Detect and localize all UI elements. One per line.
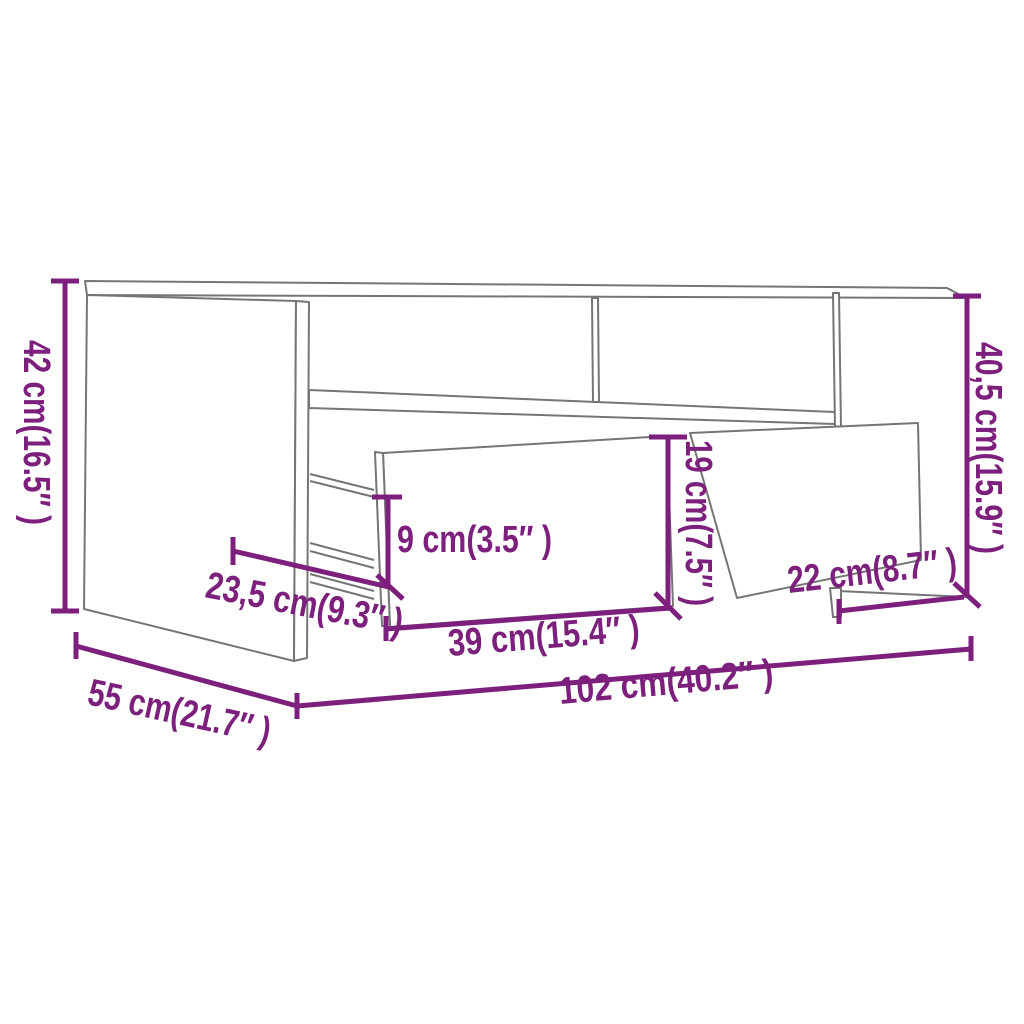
right-divider [833,293,841,428]
dim-drawer-front-height-label: 19 cm(7.5″ ) [677,440,719,606]
dim-height-left: 42 cm(16.5″ ) [15,281,79,611]
shelf-floor [309,390,835,424]
dim-width-label: 102 cm(40.2″ ) [557,652,775,713]
product-dimension-diagram: 42 cm(16.5″ ) 40,5 cm(15.9″ ) 19 cm(7.5″… [0,0,1024,1024]
dim-depth-label: 55 cm(21.7″ ) [84,672,275,753]
dim-height-left-label: 42 cm(16.5″ ) [15,340,57,525]
dim-side-compartment-width-line [839,597,964,624]
diagram-canvas: 42 cm(16.5″ ) 40,5 cm(15.9″ ) 19 cm(7.5″… [0,0,1024,1024]
dim-height-right: 40,5 cm(15.9″ ) [953,296,1009,607]
middle-divider [592,298,599,402]
dim-inner-drawer-height-label: 9 cm(3.5″ ) [397,519,552,561]
dim-height-right-label: 40,5 cm(15.9″ ) [967,342,1009,554]
